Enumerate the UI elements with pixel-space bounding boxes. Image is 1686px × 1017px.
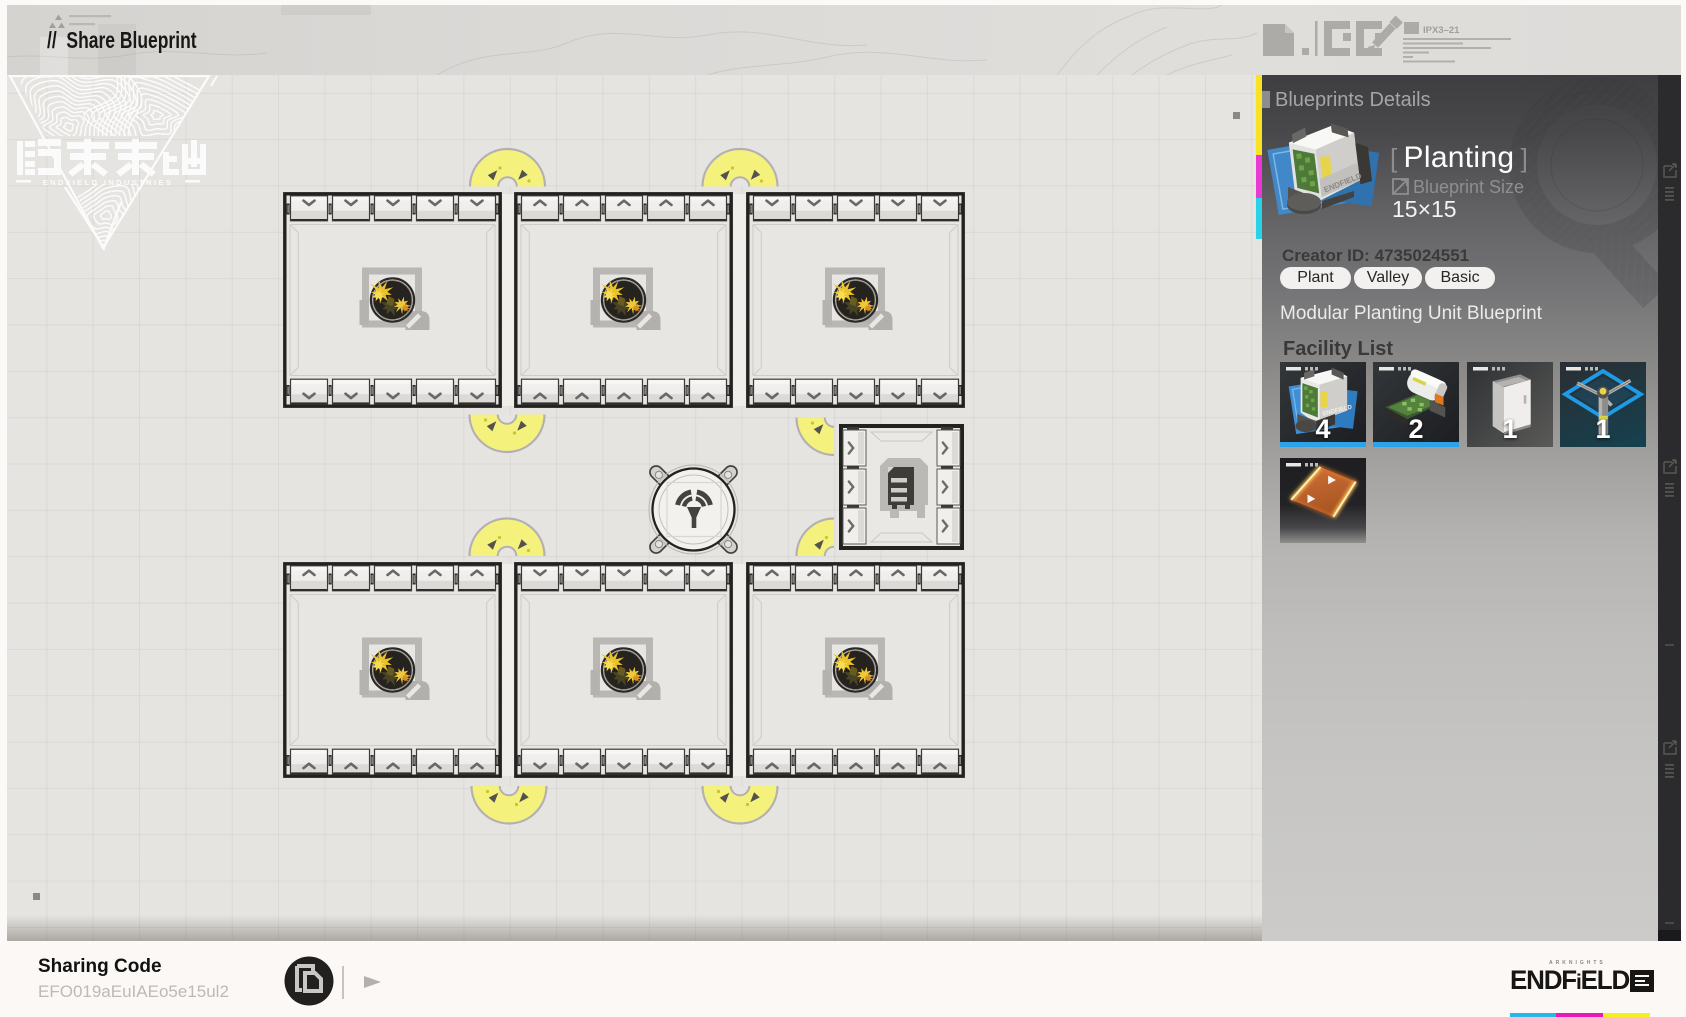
svg-text:IPX3–21: IPX3–21 xyxy=(1423,25,1460,36)
